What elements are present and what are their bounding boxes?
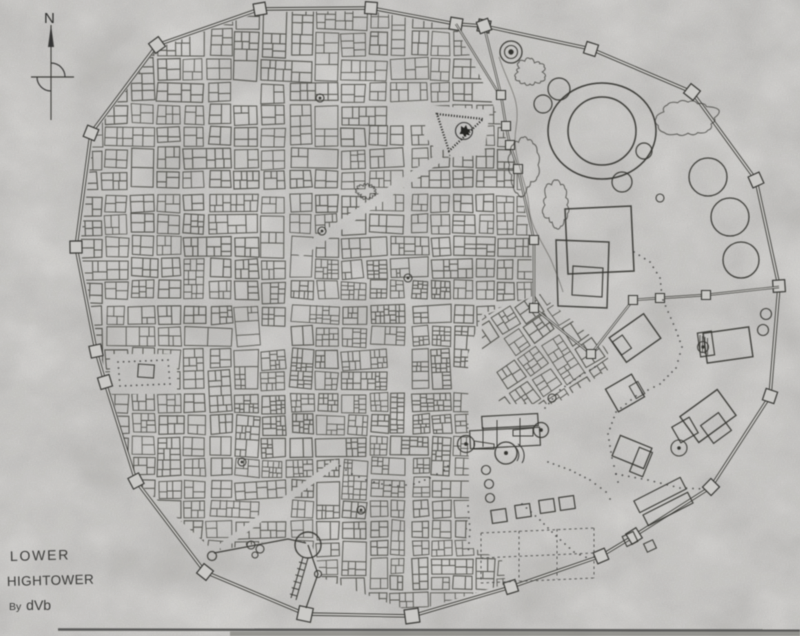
svg-text:N: N	[44, 10, 55, 27]
svg-text:HIGHTOWER: HIGHTOWER	[7, 572, 95, 589]
svg-text:LOWER: LOWER	[10, 546, 71, 564]
